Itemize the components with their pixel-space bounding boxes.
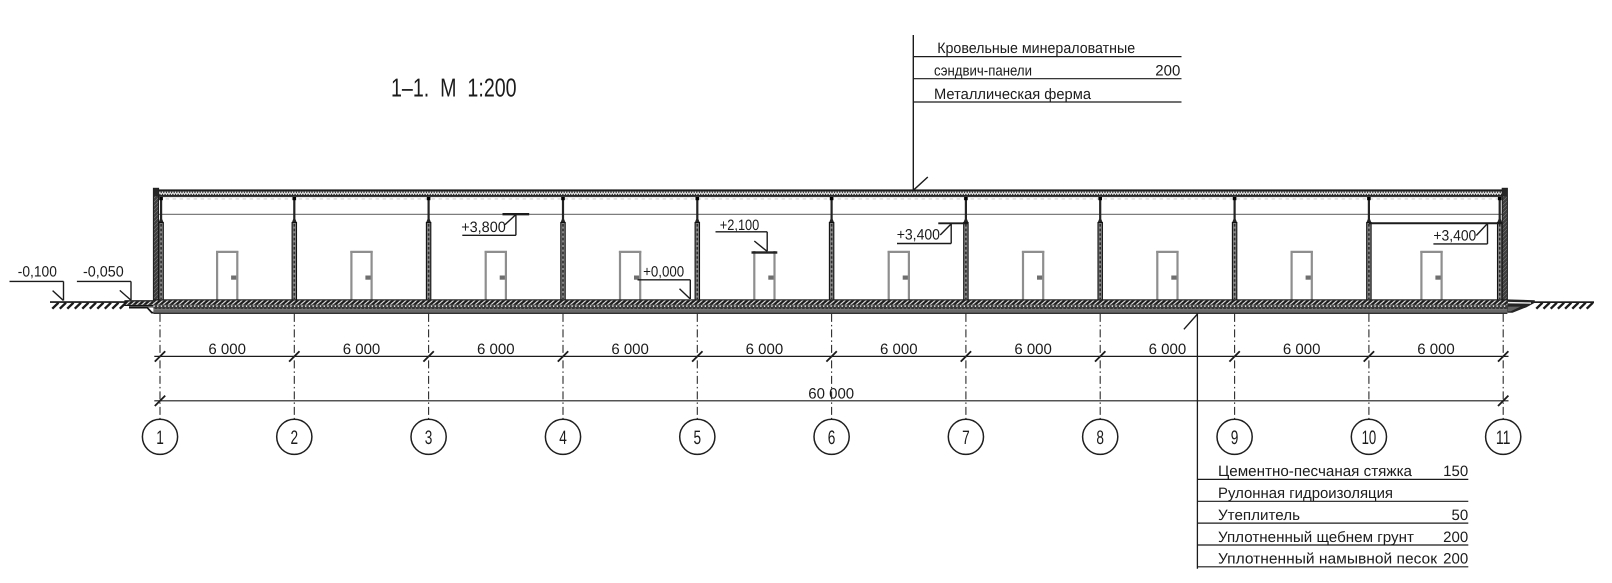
svg-text:200: 200: [1443, 551, 1468, 568]
svg-text:-0,050: -0,050: [83, 264, 124, 281]
svg-text:1: 1: [156, 427, 164, 449]
svg-text:+3,400: +3,400: [897, 227, 940, 244]
svg-text:6 000: 6 000: [477, 341, 515, 358]
svg-text:3: 3: [425, 427, 433, 449]
svg-text:2: 2: [291, 427, 299, 449]
svg-text:200: 200: [1155, 62, 1180, 79]
svg-text:200: 200: [1443, 529, 1468, 546]
svg-text:6: 6: [828, 427, 836, 449]
svg-text:7: 7: [962, 427, 970, 449]
svg-text:Металлическая ферма: Металлическая ферма: [934, 86, 1092, 103]
svg-text:Кровельные минераловатные: Кровельные минераловатные: [937, 40, 1135, 57]
svg-text:6 000: 6 000: [611, 341, 649, 358]
svg-text:1–1. М 1:200: 1–1. М 1:200: [391, 72, 517, 102]
svg-text:+3,800: +3,800: [461, 219, 506, 236]
svg-text:6 000: 6 000: [1417, 341, 1455, 358]
svg-text:сэндвич-панели: сэндвич-панели: [934, 62, 1032, 79]
svg-text:-0,100: -0,100: [18, 264, 57, 281]
svg-text:+0,000: +0,000: [643, 264, 684, 281]
svg-text:11: 11: [1496, 427, 1511, 449]
svg-text:6 000: 6 000: [746, 341, 784, 358]
svg-text:6 000: 6 000: [880, 341, 918, 358]
svg-text:+3,400: +3,400: [1433, 227, 1476, 244]
svg-text:6 000: 6 000: [343, 341, 381, 358]
svg-text:6 000: 6 000: [1149, 341, 1187, 358]
svg-text:Уплотненный намывной песок: Уплотненный намывной песок: [1218, 551, 1437, 568]
svg-text:5: 5: [694, 427, 702, 449]
svg-text:4: 4: [559, 427, 567, 449]
svg-text:6 000: 6 000: [1283, 341, 1321, 358]
svg-text:6 000: 6 000: [208, 341, 246, 358]
svg-text:8: 8: [1096, 427, 1104, 449]
svg-text:50: 50: [1452, 507, 1469, 524]
svg-text:Рулонная гидроизоляция: Рулонная гидроизоляция: [1218, 485, 1393, 502]
svg-text:10: 10: [1362, 427, 1377, 449]
svg-text:Уплотненный щебнем грунт: Уплотненный щебнем грунт: [1218, 529, 1414, 546]
svg-text:150: 150: [1443, 463, 1468, 480]
svg-text:6 000: 6 000: [1014, 341, 1052, 358]
svg-text:Цементно-песчаная стяжка: Цементно-песчаная стяжка: [1218, 463, 1413, 480]
svg-text:9: 9: [1231, 427, 1239, 449]
svg-text:Утеплитель: Утеплитель: [1218, 507, 1300, 524]
